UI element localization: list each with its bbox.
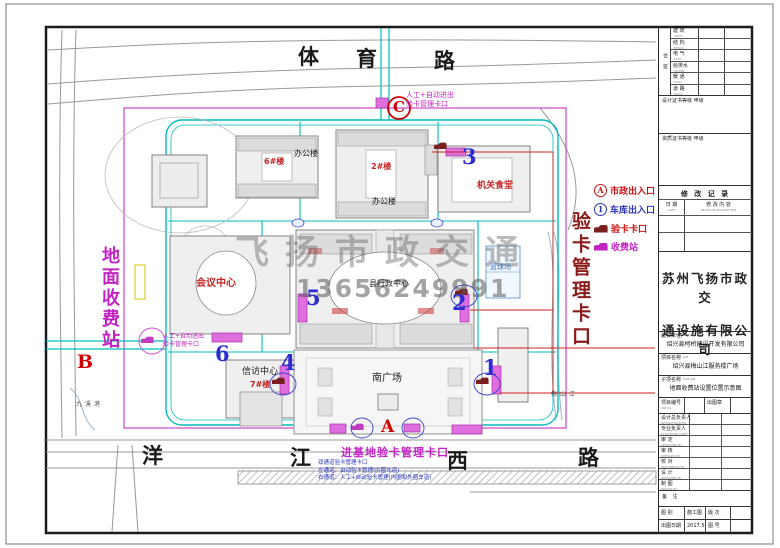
people-row: 设 计DESIGNED BY: [659, 469, 752, 480]
signoff-row: 电 气ELEC.: [671, 50, 752, 62]
revision-title: 修 改 记 录: [659, 186, 752, 200]
marker-A: A: [381, 419, 394, 436]
marker-6: 6: [215, 343, 230, 364]
gate-a-note-1: 双通道验卡管理卡口: [318, 460, 431, 468]
building-label-office-2: 办公楼: [372, 198, 396, 206]
road-top-char-3: 路: [434, 51, 455, 72]
road-bottom-char-1: 洋: [142, 446, 163, 467]
people-row: 审 核CHECKED BY: [659, 447, 752, 458]
company-name-block: 苏州飞扬市政交 通设施有限公司: [659, 252, 752, 332]
building-label-petition: 信访中心: [242, 368, 278, 377]
marker-2: 2: [452, 292, 467, 313]
toll-gate-icon: [141, 337, 154, 343]
signoff-row: 建 筑ARCH.: [671, 27, 752, 39]
marker-B: B: [77, 353, 93, 372]
building-label-2: 2#楼: [371, 163, 391, 171]
people-row: 设计总负责人DESIGN MASTER: [659, 414, 752, 425]
signoff-table: 会 签 建 筑ARCH. 结 构STRUC. 电 气ELEC. 给排水PLUMB…: [659, 27, 752, 96]
signoff-row: 道 路ROAD: [671, 85, 752, 97]
legend-item-card-check-gate: 验卡卡口: [594, 221, 647, 235]
job-row: 项目名称JOB 绍兴县梅山江服务楼广场: [659, 354, 752, 376]
car-icon: [594, 224, 608, 233]
legend-label: 市政出入口: [610, 184, 655, 197]
road-node: [431, 219, 443, 227]
building-label-admin-center: 县行政中心: [369, 280, 409, 288]
legend-label: 验卡卡口: [611, 222, 647, 235]
marker-1: 1: [483, 357, 498, 378]
legend-label: 收费站: [611, 240, 638, 253]
road-bottom-char-4: 路: [578, 448, 599, 469]
gate-left-note: 人工+自动进出 验卡管理卡口: [163, 333, 204, 349]
car-icon: [594, 242, 608, 251]
people-row: 专业负责人DISCIPLINE CHIEF: [659, 425, 752, 436]
road-top-char-1: 体: [298, 47, 319, 68]
cert-section-1: 设计证书等级 甲级: [659, 96, 752, 134]
gate-left-note-line2: 验卡管理卡口: [163, 341, 204, 349]
road-bottom-char-2: 江: [290, 448, 311, 469]
drawing-sheet: 飞扬市政交通 13656249991 体 育 路 洋 江 西 路 地面收费站 验…: [0, 0, 780, 548]
signoff-row: 结 构STRUC.: [671, 39, 752, 51]
card-check-gate-icon: [434, 143, 447, 149]
marker-4: 4: [281, 352, 296, 373]
circle-a-icon: A: [594, 184, 607, 197]
label-south-plaza: 南广场: [372, 374, 402, 384]
label-river-jiuxigang: 九溪港: [76, 402, 103, 408]
gate-a-note-2: 左通道：自动验卡管理(内圈车道): [318, 468, 431, 476]
yellow-booth: [135, 265, 145, 299]
signoff-row: 暖 通HVAC: [671, 73, 752, 85]
revision-record: 修 改 记 录 日 期 DATE 修 改 内 容 REVISION DESCRI…: [659, 186, 752, 252]
signoff-row: 给排水PLUMB.: [671, 62, 752, 74]
building-label-basketball: 篮球场: [490, 264, 511, 271]
client-row: 建设单位CLIENT 绍兴县柯桥建设开发有限公司: [659, 332, 752, 354]
building-label-7: 7#楼: [250, 381, 270, 389]
gate-c-note: 人工+自动进出 验卡管理卡口: [406, 91, 454, 109]
people-row: 审 定APPROVED BY: [659, 436, 752, 447]
gate-c-note-line1: 人工+自动进出: [406, 91, 454, 100]
gate-a-note-3: 右通道：人工+自动验卡管理(内圈和外圈车道): [318, 475, 431, 483]
building-label-conference: 会议中心: [196, 279, 236, 289]
bottom-row-1: 图 别 施工图 版 次: [659, 507, 752, 520]
road-bottom-char-3: 西: [447, 451, 468, 472]
people-row: 校 对PROOFREAD BY: [659, 458, 752, 469]
building-label-canteen: 机关食堂: [477, 182, 513, 191]
building-label-office-1: 办公楼: [294, 150, 318, 158]
subjob-row: 子项名称SUB JOB 地面收费站设置位置示意图: [659, 376, 752, 398]
legend-item-municipal-entrance: A 市政出入口: [594, 183, 655, 197]
title-block: 会 签 建 筑ARCH. 结 构STRUC. 电 气ELEC. 给排水PLUMB…: [658, 27, 751, 533]
people-rows: 设计总负责人DESIGN MASTER 专业负责人DISCIPLINE CHIE…: [659, 414, 752, 491]
marker-5: 5: [306, 287, 321, 308]
card-check-management-label: 验卡管理卡口: [570, 211, 589, 349]
signoff-side-label: 会 签: [662, 53, 667, 69]
ground-toll-station-label: 地面收费站: [100, 246, 118, 351]
cert-section-2: 资质证书等级 甲级: [659, 134, 752, 186]
jobno-row: 项目编号 JOB No. 出图章: [659, 398, 752, 414]
circle-1-icon: 1: [594, 203, 607, 216]
gate-a-notes: 双通道验卡管理卡口 左通道：自动验卡管理(内圈车道) 右通道：人工+自动验卡管理…: [318, 460, 431, 483]
gate-c-note-line2: 验卡管理卡口: [406, 100, 454, 109]
gate-a-title: 进基地验卡管理卡口: [341, 447, 449, 458]
legend-item-garage-entrance: 1 车库出入口: [594, 202, 655, 216]
legend-item-toll-station: 收费站: [594, 239, 638, 253]
marker-3: 3: [462, 146, 477, 167]
people-row: 制 图DRAWN BY: [659, 480, 752, 491]
road-top-char-2: 育: [356, 49, 377, 70]
road-node: [292, 219, 304, 227]
gate-left-note-line1: 人工+自动进出: [163, 333, 204, 341]
company-name-line1: 苏州飞扬市政交: [659, 268, 752, 306]
note-row: 备 注: [659, 491, 752, 507]
legend-label: 车库出入口: [610, 203, 655, 216]
bottom-row-2: 出图日期 2017.5 图 号: [659, 520, 752, 533]
label-river-meishanjiang: 梅山江: [551, 392, 578, 398]
marker-C: C: [393, 100, 405, 115]
building-label-6: 6#楼: [264, 158, 284, 166]
